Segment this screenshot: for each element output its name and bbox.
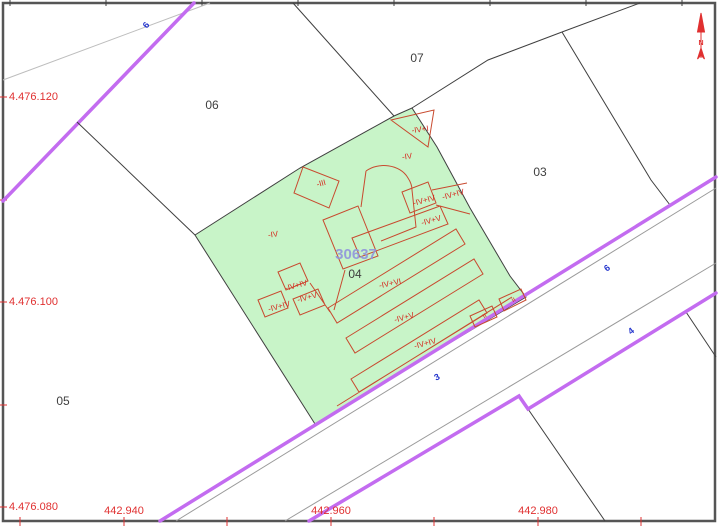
- coordinate-label-y: 4.476.120: [9, 91, 58, 103]
- parcel-number-06: 06: [205, 98, 219, 112]
- coordinate-label-y: 4.476.100: [9, 296, 58, 308]
- parcel-number-04: 04: [348, 267, 362, 281]
- north-letter: N: [698, 40, 703, 47]
- parcel-number-05: 05: [56, 394, 70, 408]
- parcel-number-07: 07: [410, 51, 424, 65]
- coordinate-label-x: 442.960: [311, 505, 351, 517]
- coordinate-label-x: 442.980: [518, 505, 558, 517]
- building-code-label: -IV: [401, 151, 413, 161]
- cadastral-map: N 06 07 03 04 05 30637 6 6 4 3 -IV+I -IV…: [0, 0, 718, 529]
- coordinate-label-y: 4.476.080: [9, 501, 58, 513]
- parcel-reference-label: 30637: [335, 246, 377, 263]
- parcel-number-03: 03: [533, 165, 547, 179]
- building-code-label: -IV: [267, 229, 279, 239]
- coordinate-label-x: 442.940: [104, 505, 144, 517]
